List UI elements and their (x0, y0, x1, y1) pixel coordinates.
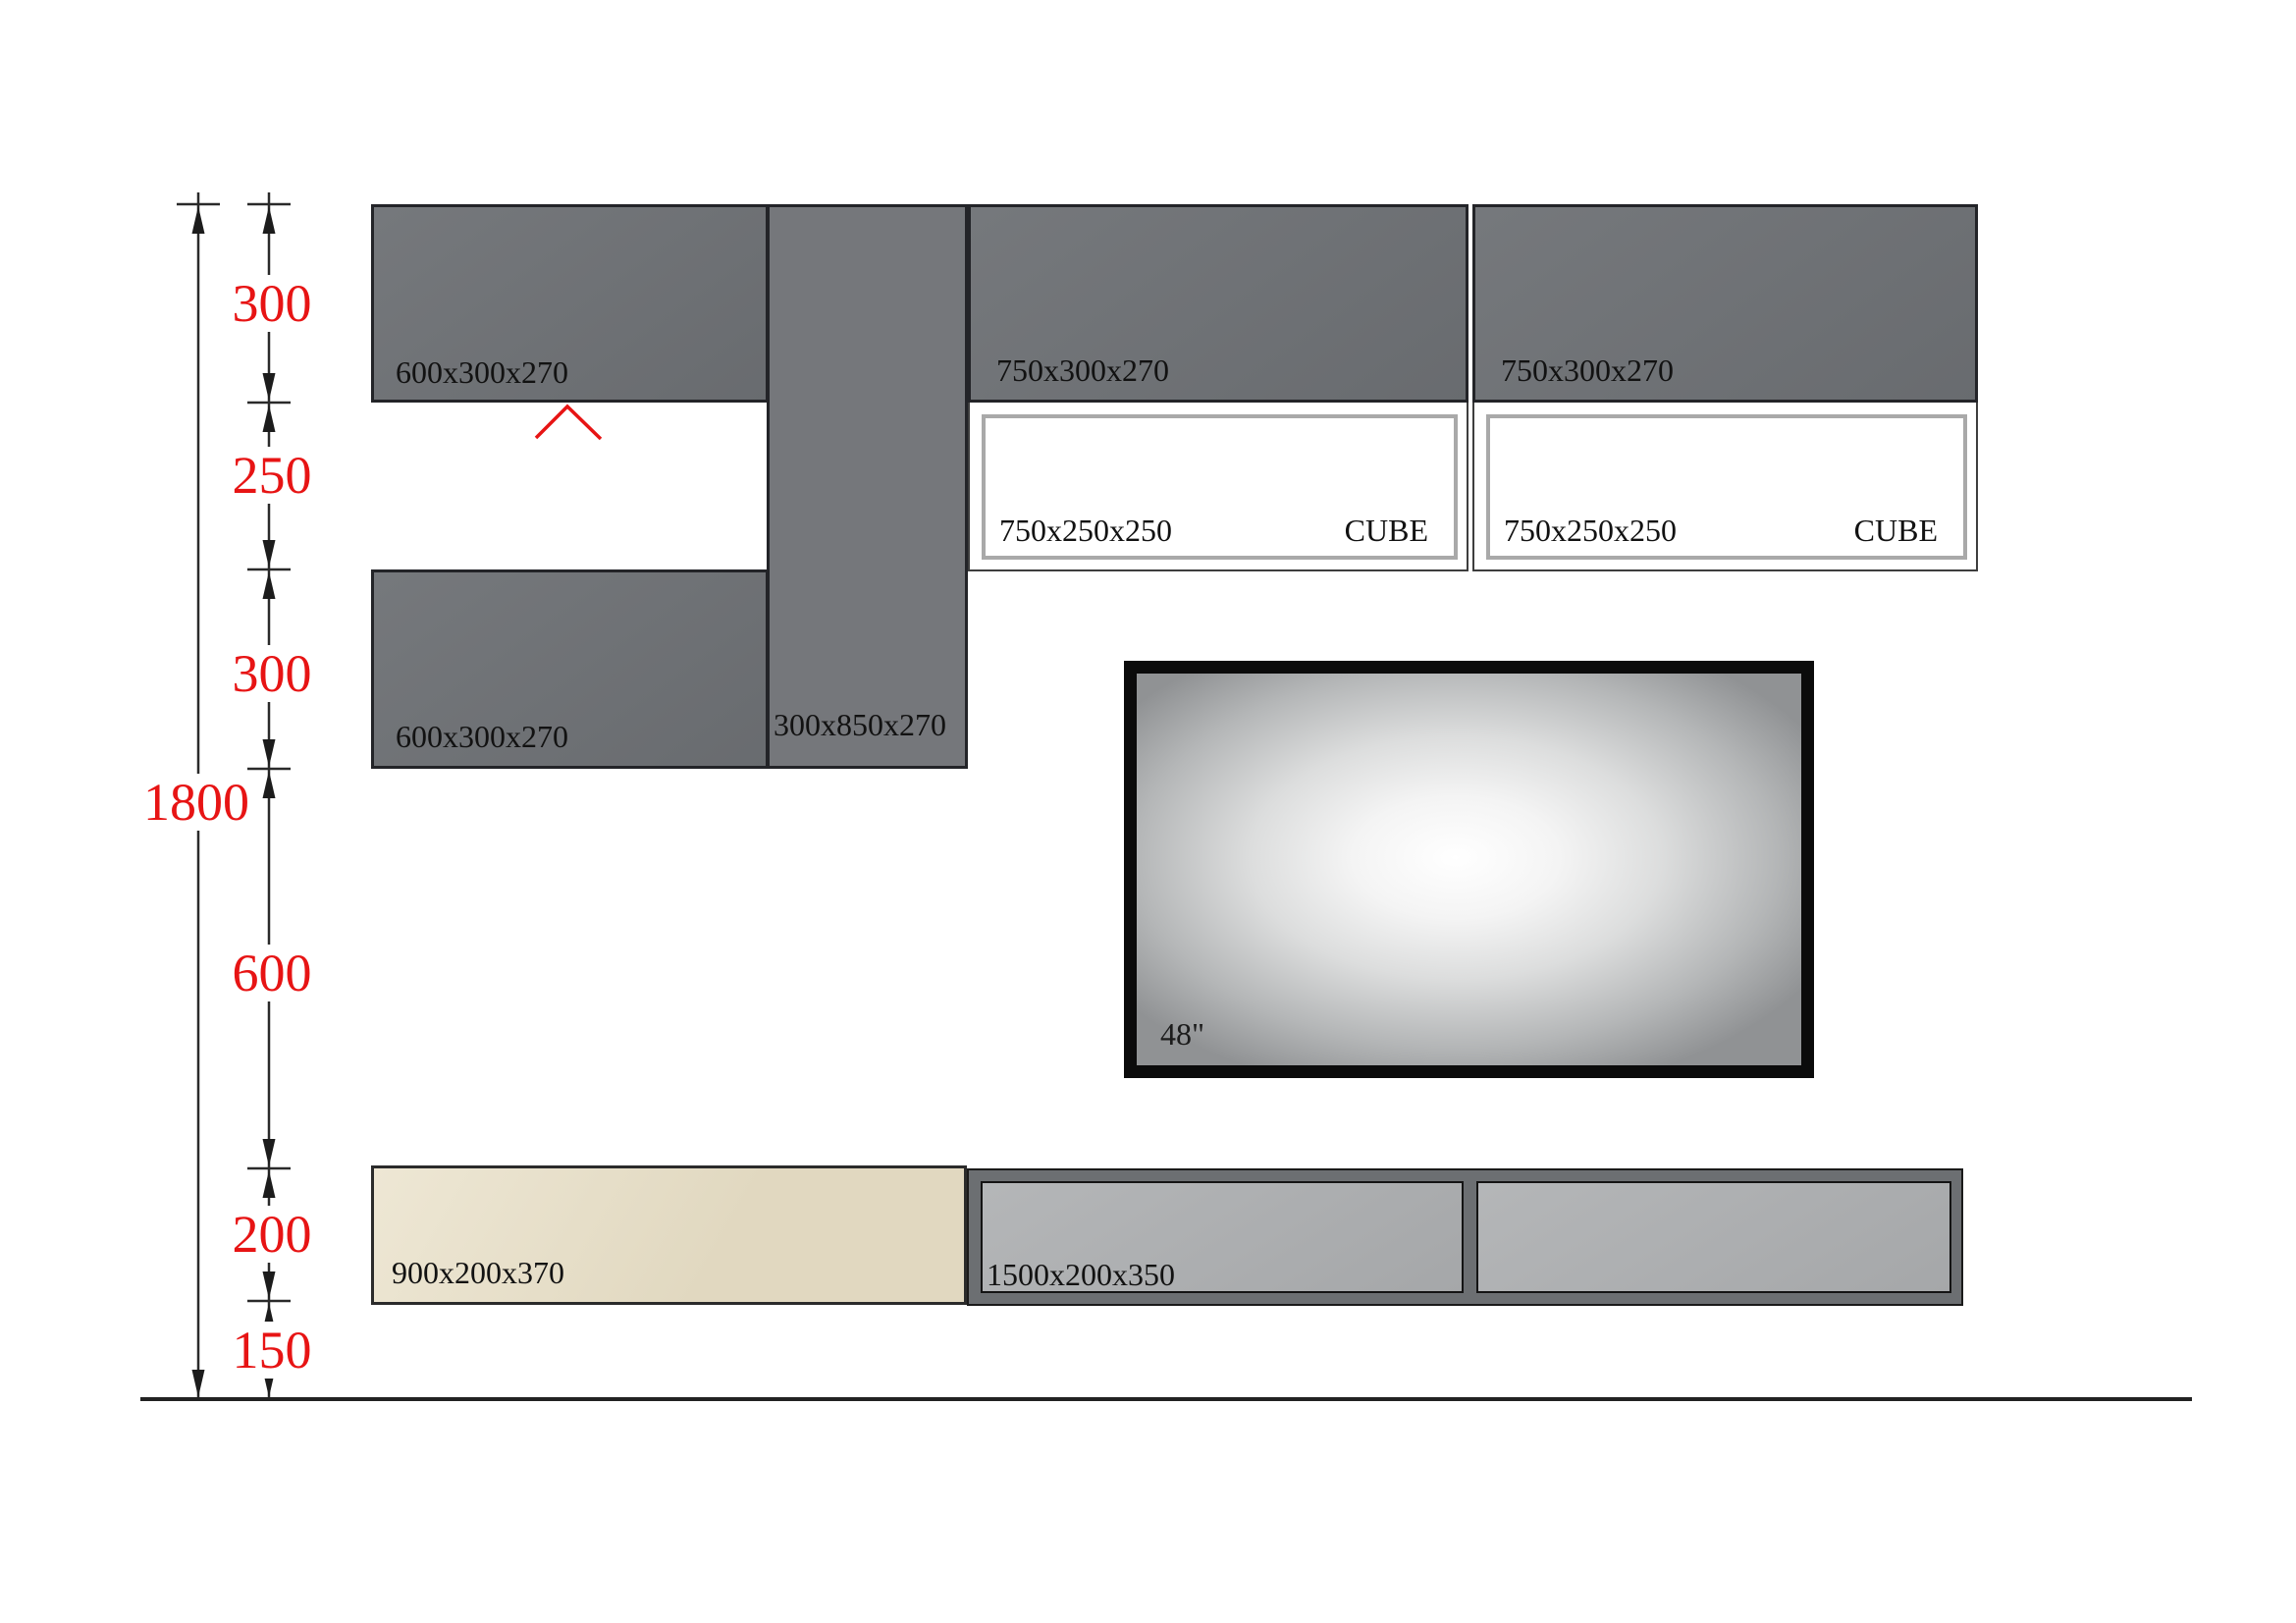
cube-left: 750x250x250 CUBE (982, 414, 1458, 560)
red-caret-mark (536, 406, 601, 439)
shelf-beige-label: 900x200x370 (392, 1257, 564, 1288)
cube-right: 750x250x250 CUBE (1486, 414, 1967, 560)
shelf-beige: 900x200x370 (371, 1165, 967, 1305)
cabinet-vertical: 300x850x270 (767, 204, 968, 769)
cabinet-top-left-label: 600x300x270 (396, 356, 568, 388)
cube-right-size-label: 750x250x250 (1504, 514, 1677, 546)
cube-left-size-label: 750x250x250 (999, 514, 1172, 546)
dim-label-seg-250: 250 (227, 447, 318, 504)
dim-label-seg-300-mid: 300 (227, 645, 318, 702)
shelf-gray-label: 1500x200x350 (987, 1259, 1175, 1290)
cube-niche-right: 750x250x250 CUBE (1472, 403, 1978, 571)
cabinet-top-mid: 750x300x270 (968, 204, 1468, 403)
dim-label-seg-600: 600 (227, 945, 318, 1001)
elevation-drawing: 600x300x270 300x850x270 750x300x270 750x… (0, 0, 2296, 1623)
dim-label-seg-200: 200 (227, 1206, 318, 1263)
cabinet-top-mid-label: 750x300x270 (996, 354, 1169, 386)
dim-label-total-1800: 1800 (137, 774, 255, 831)
cube-left-tag: CUBE (1345, 514, 1428, 546)
cabinet-bottom-left: 600x300x270 (371, 569, 769, 769)
shelf-gray-panel-right (1476, 1181, 1951, 1293)
cabinet-top-left: 600x300x270 (371, 204, 769, 403)
cube-right-tag: CUBE (1854, 514, 1938, 546)
dim-label-seg-300-top: 300 (227, 275, 318, 332)
tv: 48" (1124, 661, 1814, 1078)
cube-niche-left: 750x250x250 CUBE (968, 403, 1468, 571)
cabinet-top-right-label: 750x300x270 (1501, 354, 1674, 386)
tv-screen: 48" (1137, 674, 1801, 1065)
cabinet-bottom-left-label: 600x300x270 (396, 721, 568, 752)
cabinet-top-right: 750x300x270 (1472, 204, 1978, 403)
tv-size-label: 48" (1160, 1018, 1204, 1050)
shelf-gray: 1500x200x350 (967, 1168, 1963, 1306)
cabinet-vertical-label: 300x850x270 (774, 709, 946, 740)
dim-label-seg-150: 150 (227, 1322, 318, 1379)
